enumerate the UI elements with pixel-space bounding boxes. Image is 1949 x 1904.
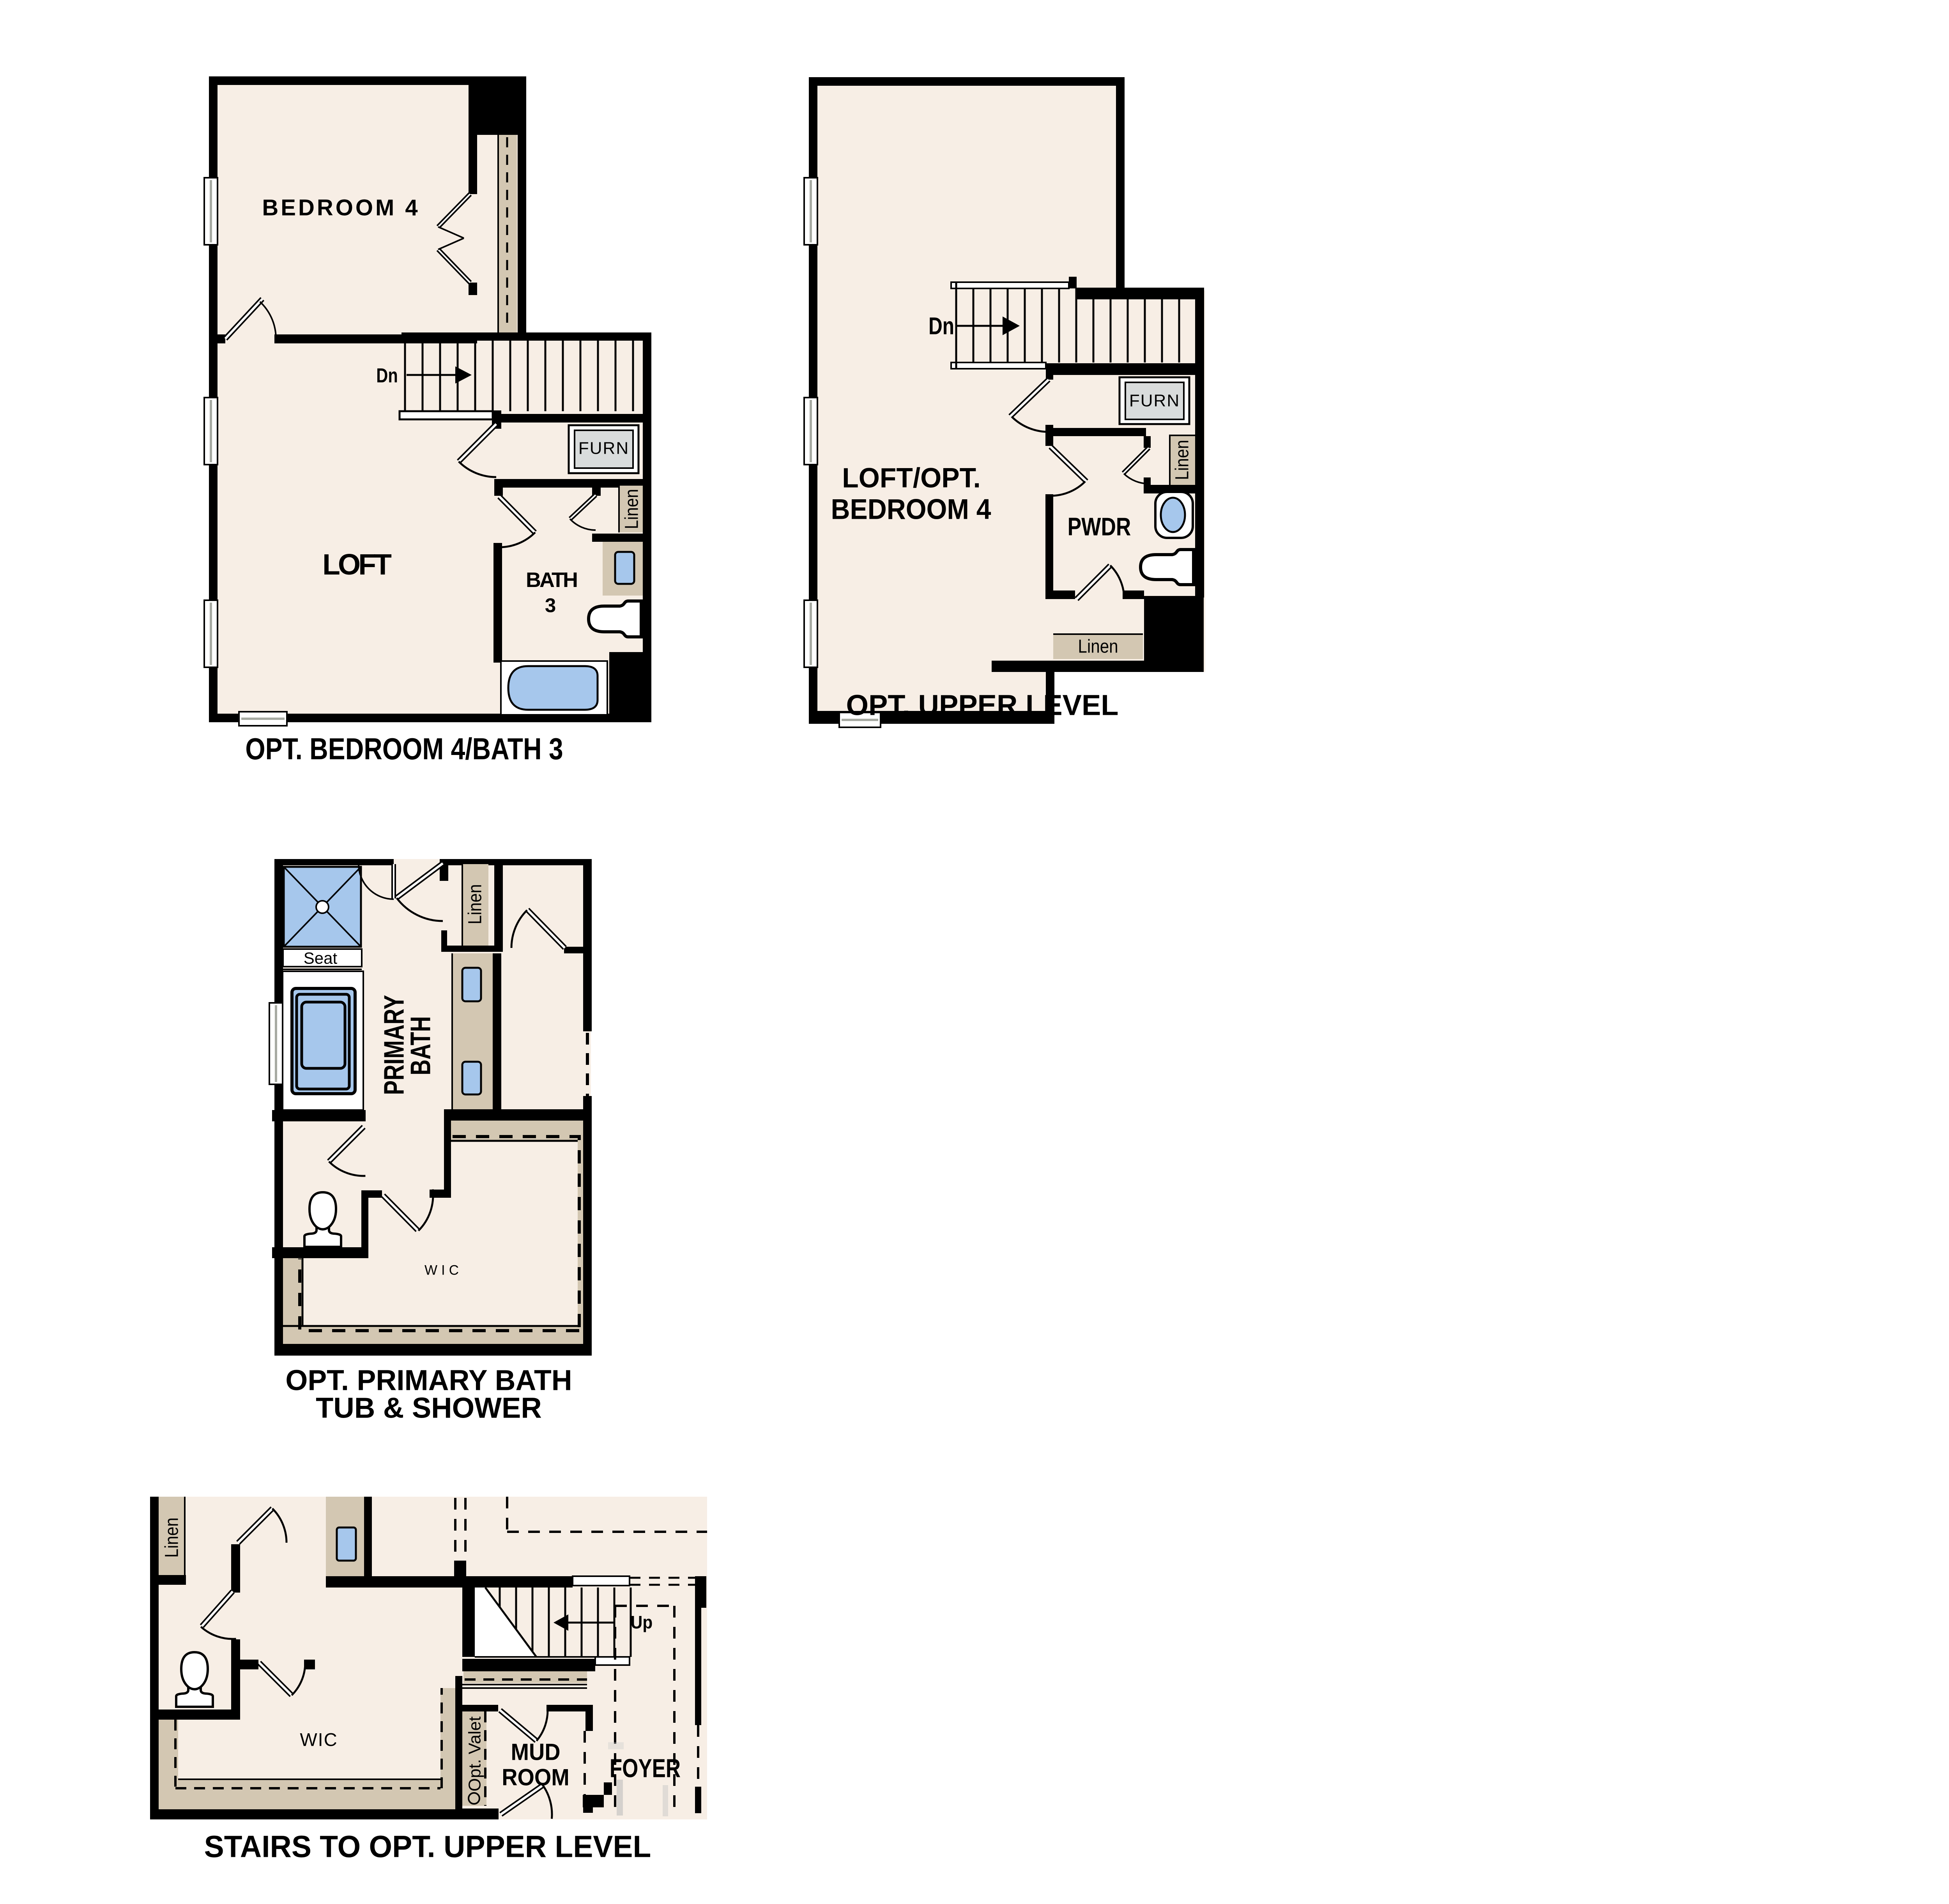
svg-text:TUB & SHOWER: TUB & SHOWER xyxy=(316,1392,542,1424)
svg-text:FURN: FURN xyxy=(578,439,629,458)
svg-text:OPT. UPPER LEVEL: OPT. UPPER LEVEL xyxy=(846,689,1118,721)
svg-text:Up: Up xyxy=(631,1613,653,1633)
svg-text:Linen: Linen xyxy=(1171,440,1192,480)
svg-text:LOFT: LOFT xyxy=(322,548,391,581)
svg-text:FOYER: FOYER xyxy=(610,1753,681,1782)
svg-text:OPT. BEDROOM 4/BATH 3: OPT. BEDROOM 4/BATH 3 xyxy=(245,732,563,766)
svg-text:Opt. Valet: Opt. Valet xyxy=(465,1717,485,1791)
svg-text:FURN: FURN xyxy=(1129,391,1180,410)
svg-text:LOFT/OPT.: LOFT/OPT. xyxy=(842,462,981,493)
svg-text:BATH: BATH xyxy=(405,1016,436,1075)
svg-text:Dn: Dn xyxy=(929,312,954,339)
svg-text:STAIRS TO OPT. UPPER LEVEL: STAIRS TO OPT. UPPER LEVEL xyxy=(204,1830,651,1863)
svg-text:Seat: Seat xyxy=(304,949,338,967)
svg-text:Linen: Linen xyxy=(161,1517,182,1557)
svg-text:WIC: WIC xyxy=(424,1263,463,1278)
svg-text:BATH: BATH xyxy=(526,568,577,592)
svg-text:WIC: WIC xyxy=(300,1729,338,1750)
svg-text:ROOM: ROOM xyxy=(502,1765,569,1791)
svg-text:3: 3 xyxy=(545,594,556,617)
svg-text:PWDR: PWDR xyxy=(1068,512,1131,541)
svg-text:Linen: Linen xyxy=(621,489,642,529)
svg-text:BEDROOM 4: BEDROOM 4 xyxy=(831,493,991,525)
svg-text:MUD: MUD xyxy=(511,1740,560,1765)
svg-text:Linen: Linen xyxy=(464,884,485,924)
svg-text:Dn: Dn xyxy=(376,364,398,387)
svg-text:Linen: Linen xyxy=(1078,636,1118,657)
svg-text:BEDROOM 4: BEDROOM 4 xyxy=(262,195,420,221)
